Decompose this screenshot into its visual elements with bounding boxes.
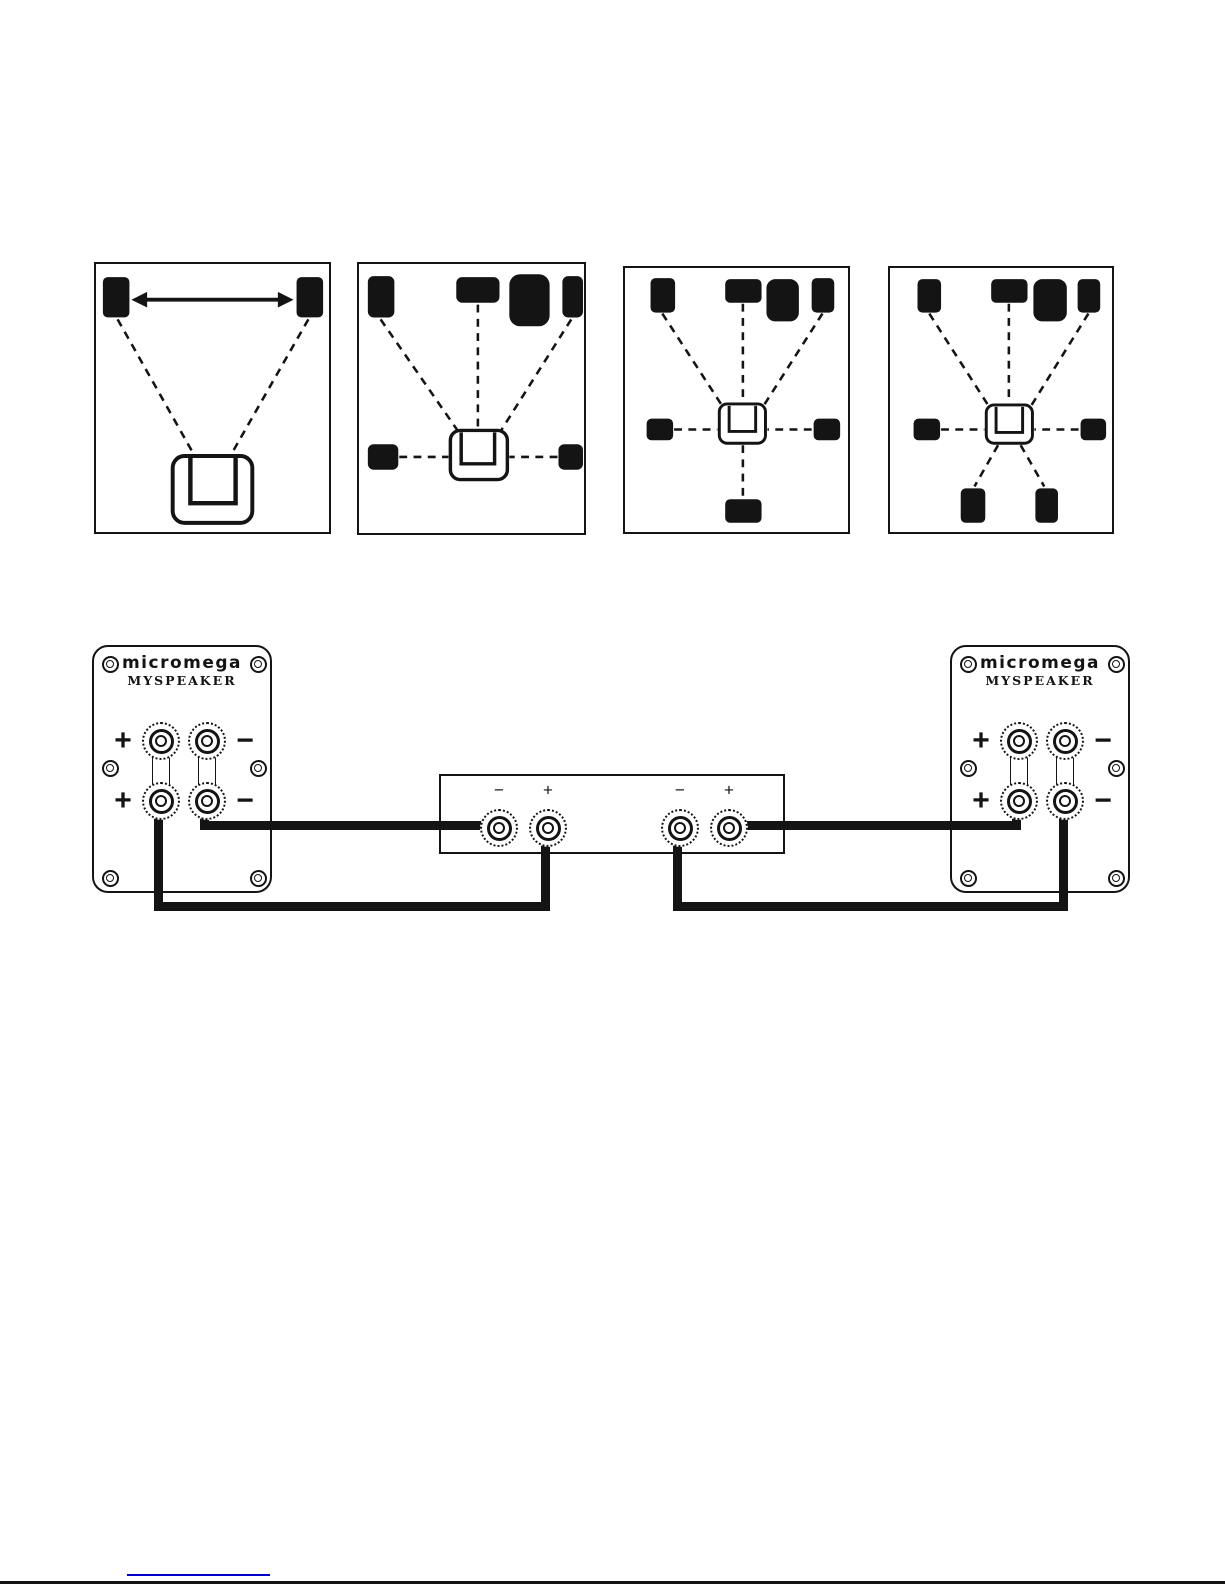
amp-plus-label: +: [543, 782, 553, 799]
binding-post-plus-top[interactable]: [1000, 722, 1038, 760]
binding-post-minus-bottom[interactable]: [1046, 782, 1084, 820]
amp-post-left-minus[interactable]: [480, 809, 518, 847]
manual-page: MICROMEGA MYSPEAKER + − + − MICROMEGA MY…: [0, 0, 1225, 1585]
micromega-logo: MICROMEGA: [952, 653, 1128, 673]
binding-post-minus-top[interactable]: [1046, 722, 1084, 760]
subwoofer-icon: [509, 274, 549, 326]
binding-post-plus-top[interactable]: [142, 722, 180, 760]
side-right-speaker-icon: [558, 444, 583, 470]
side-right-speaker-icon: [1081, 419, 1107, 441]
center-speaker-icon: [991, 279, 1027, 303]
front-left-speaker-icon: [368, 276, 395, 317]
screw-icon: [250, 656, 267, 673]
wire-left-plus-drop: [154, 810, 163, 911]
minus-label: −: [1094, 786, 1112, 816]
front-right-speaker-icon: [562, 276, 583, 317]
sightlines: [662, 304, 822, 498]
screw-icon: [102, 870, 119, 887]
amplifier-terminal-panel: − + − +: [439, 774, 785, 854]
rear-right-speaker-icon: [1035, 488, 1058, 522]
front-right-speaker-icon: [297, 277, 324, 317]
subwoofer-icon: [766, 279, 798, 321]
listening-position-icon: [986, 405, 1032, 443]
front-right-speaker-icon: [812, 278, 835, 312]
surround-5-1-canvas: [359, 264, 584, 533]
sightlines: [118, 319, 309, 457]
wire-right-minus-run: [673, 902, 1068, 911]
placement-diagram-stereo: [94, 262, 331, 534]
placement-diagram-5-1: [357, 262, 586, 535]
front-right-speaker-icon: [1078, 279, 1101, 312]
plus-label: +: [114, 726, 132, 756]
amp-minus-label: −: [494, 782, 504, 799]
surround-7-1-canvas: [890, 268, 1112, 532]
screw-icon: [1108, 870, 1125, 887]
subwoofer-icon: [1033, 279, 1066, 321]
minus-label: −: [236, 726, 254, 756]
right-speaker-terminal-plate: MICROMEGA MYSPEAKER + − + −: [950, 645, 1130, 893]
screw-icon: [960, 870, 977, 887]
wire-right-plus-run: [740, 821, 1021, 830]
footer-link-underline[interactable]: [127, 1574, 270, 1576]
plus-label: +: [972, 726, 990, 756]
listening-position-icon: [173, 456, 253, 523]
side-left-speaker-icon: [647, 419, 674, 441]
wire-left-plus-rise: [541, 840, 550, 911]
listening-position-icon: [450, 430, 507, 479]
surround-6-1-canvas: [625, 268, 848, 532]
sightlines: [929, 304, 1088, 487]
center-speaker-icon: [456, 277, 499, 303]
wire-right-minus-rise: [1059, 810, 1068, 911]
binding-post-plus-bottom[interactable]: [142, 782, 180, 820]
left-speaker-terminal-plate: MICROMEGA MYSPEAKER + − + −: [92, 645, 272, 893]
binding-post-minus-bottom[interactable]: [188, 782, 226, 820]
wire-left-minus-run: [200, 821, 482, 830]
amp-post-right-plus[interactable]: [710, 809, 748, 847]
rear-center-speaker-icon: [725, 499, 761, 523]
amp-post-right-minus[interactable]: [661, 809, 699, 847]
equidistance-arrow-icon: [131, 292, 293, 308]
binding-post-minus-top[interactable]: [188, 722, 226, 760]
front-left-speaker-icon: [918, 279, 942, 312]
myspeaker-logo: MYSPEAKER: [94, 673, 270, 688]
front-left-speaker-icon: [103, 277, 130, 317]
plus-label: +: [114, 786, 132, 816]
screw-icon: [1108, 656, 1125, 673]
minus-label: −: [236, 786, 254, 816]
binding-post-plus-bottom[interactable]: [1000, 782, 1038, 820]
side-left-speaker-icon: [368, 444, 398, 470]
side-right-speaker-icon: [814, 419, 841, 441]
plus-label: +: [972, 786, 990, 816]
minus-label: −: [1094, 726, 1112, 756]
side-left-speaker-icon: [914, 419, 941, 441]
myspeaker-logo: MYSPEAKER: [952, 673, 1128, 688]
center-speaker-icon: [725, 279, 761, 303]
front-left-speaker-icon: [651, 278, 676, 312]
screw-icon: [102, 656, 119, 673]
amp-minus-label: −: [675, 782, 685, 799]
amp-plus-label: +: [724, 782, 734, 799]
stereo-diagram-canvas: [96, 264, 329, 532]
screw-icon: [250, 760, 267, 777]
placement-diagram-7-1: [888, 266, 1114, 534]
screw-icon: [960, 760, 977, 777]
screw-icon: [1108, 760, 1125, 777]
screw-icon: [250, 870, 267, 887]
page-bottom-rule: [0, 1581, 1225, 1584]
wire-left-plus-run: [154, 902, 550, 911]
micromega-logo: MICROMEGA: [94, 653, 270, 673]
placement-diagram-6-1: [623, 266, 850, 534]
wire-right-minus-drop: [673, 840, 682, 911]
screw-icon: [102, 760, 119, 777]
amp-post-left-plus[interactable]: [529, 809, 567, 847]
screw-icon: [960, 656, 977, 673]
listening-position-icon: [719, 404, 765, 443]
rear-left-speaker-icon: [961, 488, 986, 522]
